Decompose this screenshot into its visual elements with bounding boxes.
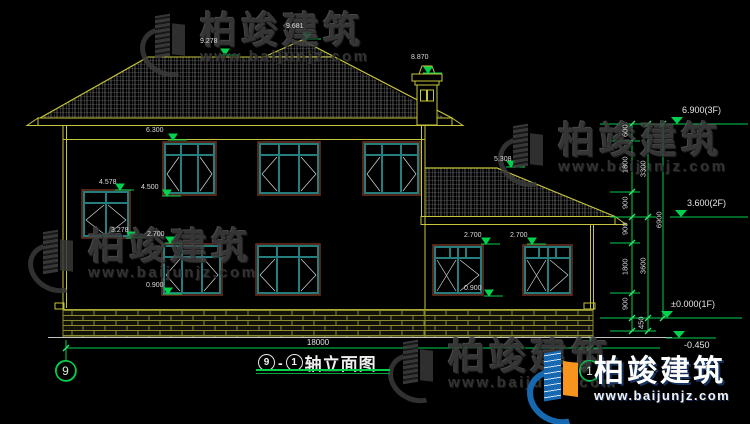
spot-lintel-2f: 6.300 bbox=[146, 127, 164, 134]
dim-3600: 3600 bbox=[639, 248, 647, 284]
axis-bubble-9-label: 9 bbox=[62, 365, 69, 377]
brand-logo-url: www.baijunjz.com bbox=[594, 388, 730, 404]
watermark-right: 柏竣建筑 www.baijunjz.com bbox=[496, 122, 727, 186]
spot-annex-ridge: 5.308 bbox=[494, 156, 512, 163]
dim-600: 600 bbox=[621, 113, 629, 149]
spot-win-1f-sill: 0.900 bbox=[146, 282, 164, 289]
brand-logo-icon bbox=[524, 350, 590, 420]
dim-450: 450 bbox=[637, 305, 645, 341]
spot-annex-sill: 0.900 bbox=[464, 285, 482, 292]
cad-elevation-canvas: 9.278 9.681 8.870 6.300 4.578 4.500 3.27… bbox=[0, 0, 750, 424]
dim-900-b: 900 bbox=[621, 211, 629, 247]
watermark-url: www.baijunjz.com bbox=[200, 49, 369, 66]
watermark-brand: 柏竣建筑 bbox=[200, 12, 369, 49]
level-1f: ±0.000(1F) bbox=[671, 300, 715, 309]
spot-chimney: 8.870 bbox=[411, 54, 429, 61]
title-underline-2 bbox=[256, 373, 390, 374]
watermark-logo-icon bbox=[138, 12, 196, 76]
spot-ridge: 9.278 bbox=[200, 38, 218, 45]
dim-1800-b: 1800 bbox=[621, 249, 629, 285]
brand-logo-name: 柏竣建筑 bbox=[594, 356, 730, 388]
window-2f-3 bbox=[363, 142, 420, 195]
spot-sill-2f: 4.500 bbox=[141, 184, 159, 191]
level-2f: 3.600(2F) bbox=[687, 199, 726, 208]
watermark-logo-icon bbox=[496, 122, 554, 186]
title-text: 轴立面图 bbox=[305, 350, 377, 375]
spot-stair-top: 4.578 bbox=[99, 179, 117, 186]
level-3f: 6.900(3F) bbox=[682, 106, 721, 115]
watermark-logo-icon bbox=[26, 228, 84, 292]
spot-peak: 9.681 bbox=[286, 23, 304, 30]
brand-logo: 柏竣建筑 www.baijunjz.com bbox=[524, 350, 730, 420]
watermark-logo-icon bbox=[386, 338, 444, 402]
axis-bubble-9: 9 bbox=[55, 360, 76, 381]
drawing-title: 9 - 1 轴立面图 bbox=[258, 350, 377, 375]
dim-900-c: 900 bbox=[621, 286, 629, 322]
overall-width-dim: 18000 bbox=[296, 339, 340, 347]
watermark-top: 柏竣建筑 www.baijunjz.com bbox=[138, 12, 369, 76]
spot-annex-w1-top: 2.700 bbox=[464, 232, 482, 239]
dim-6900: 6900 bbox=[655, 202, 663, 238]
dim-1800-a: 1800 bbox=[621, 147, 629, 183]
window-2f-2 bbox=[258, 142, 320, 195]
window-1f-2 bbox=[256, 244, 320, 295]
window-annex-2 bbox=[523, 245, 572, 295]
window-2f-1 bbox=[163, 142, 216, 195]
brick-base bbox=[63, 310, 593, 337]
dim-3300: 3300 bbox=[639, 151, 647, 187]
spot-annex-w2-top: 2.700 bbox=[510, 232, 528, 239]
watermark-url: www.baijunjz.com bbox=[88, 265, 257, 282]
title-underline-1 bbox=[256, 369, 390, 371]
spot-stair-bottom: 3.278 bbox=[111, 227, 129, 234]
chimney bbox=[412, 66, 442, 125]
spot-win-1f-top: 2.700 bbox=[147, 231, 165, 238]
level-grade: -0.450 bbox=[684, 341, 710, 350]
watermark-left: 柏竣建筑 www.baijunjz.com bbox=[26, 228, 257, 292]
